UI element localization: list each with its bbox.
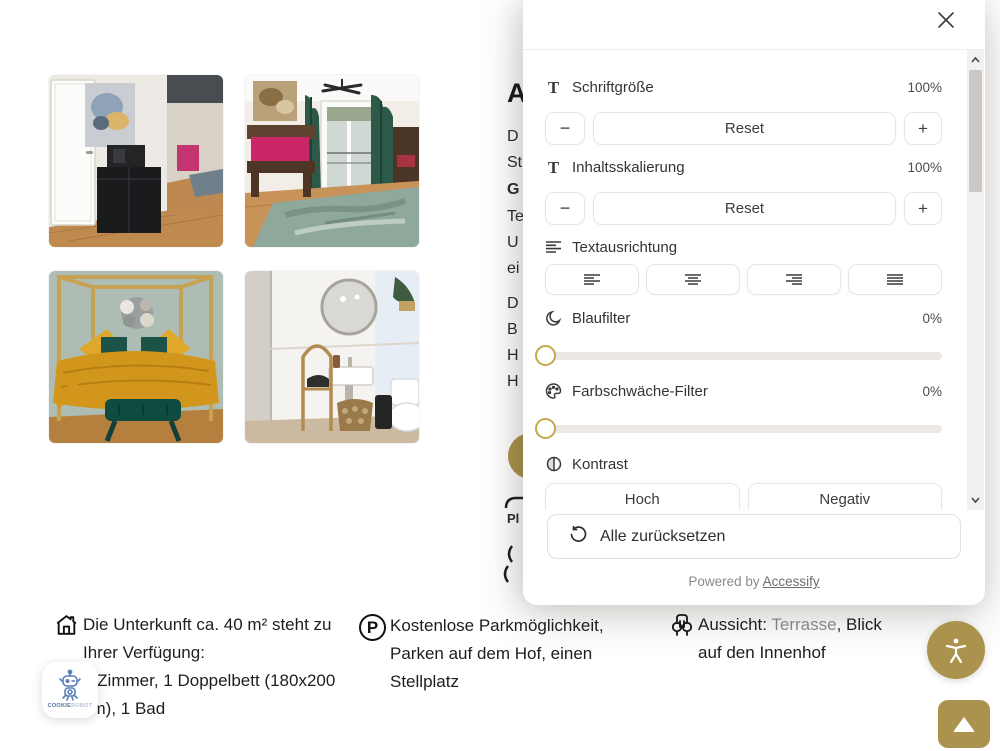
panel-header — [523, 0, 985, 50]
align-left-button[interactable] — [545, 264, 639, 295]
color-weakness-label: Farbschwäche-Filter — [572, 383, 708, 400]
contrast-icon — [545, 456, 562, 473]
powered-by: Powered by Accessify — [547, 574, 961, 589]
house-icon — [54, 613, 79, 647]
blue-filter-value: 0% — [922, 311, 942, 326]
text-fragment: St — [507, 154, 522, 172]
reset-all-label: Alle zurücksetzen — [600, 528, 725, 546]
text-fragment: U — [507, 234, 519, 252]
font-size-increase-button[interactable]: + — [904, 112, 942, 145]
text-fragment: D — [507, 295, 519, 313]
blue-filter-slider-track[interactable] — [545, 352, 942, 360]
text-fragment: ei — [507, 260, 519, 278]
blue-filter-slider — [545, 343, 942, 369]
text-alignment-controls — [545, 264, 942, 295]
contrast-label-row: Kontrast — [545, 454, 942, 474]
contrast-controls: Hoch Negativ — [545, 483, 942, 510]
align-right-button[interactable] — [747, 264, 841, 295]
align-center-button[interactable] — [646, 264, 740, 295]
align-center-icon — [685, 274, 701, 285]
panel-scrollbar[interactable] — [967, 50, 984, 510]
feature-line: auf den Innenhof — [698, 639, 882, 667]
content-scaling-label-row: T Inhaltsskalierung 100% — [545, 157, 942, 177]
align-left-icon — [584, 274, 600, 285]
color-weakness-value: 0% — [922, 384, 942, 399]
text-alignment-label: Textausrichtung — [572, 239, 677, 256]
font-size-icon: T — [545, 79, 562, 96]
color-weakness-slider-track[interactable] — [545, 425, 942, 433]
feature-view: Aussicht: Terrasse, Blick auf den Innenh… — [698, 611, 882, 667]
view-value-muted: Terrasse — [771, 615, 836, 634]
content-scaling-increase-button[interactable]: + — [904, 192, 942, 225]
text-alignment-icon — [545, 239, 562, 256]
blue-filter-slider-handle[interactable] — [535, 345, 556, 366]
panel-scroll-area: T Schriftgröße 100% − Reset + T Inhaltss… — [523, 50, 985, 510]
align-justify-button[interactable] — [848, 264, 942, 295]
cookie-settings-widget[interactable]: COOKIEROBOT — [42, 662, 98, 718]
accessibility-widget-button[interactable] — [927, 621, 985, 679]
align-right-icon — [786, 274, 802, 285]
blue-filter-label-row: Blaufilter 0% — [545, 308, 942, 328]
cookie-brand-secondary: ROBOT — [71, 703, 92, 709]
font-size-decrease-button[interactable]: − — [545, 112, 585, 145]
view-label: Aussicht: — [698, 615, 771, 634]
cookie-brand-primary: COOKIE — [48, 703, 72, 709]
reset-all-button[interactable]: Alle zurücksetzen — [547, 514, 961, 559]
scroll-top-icon — [953, 717, 975, 732]
scrollbar-down-arrow[interactable] — [967, 492, 984, 508]
cookie-robot-icon — [55, 668, 85, 702]
font-size-label: Schriftgröße — [572, 79, 654, 96]
binoculars-icon — [670, 613, 694, 648]
font-size-controls: − Reset + — [545, 112, 942, 145]
scroll-to-top-button[interactable] — [938, 700, 990, 748]
accessibility-panel: T Schriftgröße 100% − Reset + T Inhaltss… — [523, 0, 985, 605]
content-scaling-value: 100% — [907, 160, 942, 175]
content-scaling-controls: − Reset + — [545, 192, 942, 225]
text-alignment-label-row: Textausrichtung — [545, 237, 942, 257]
feature-parking: P Kostenlose Parkmöglichkeit, Parken auf… — [390, 612, 604, 696]
content-scaling-icon: T — [545, 159, 562, 176]
font-size-label-row: T Schriftgröße 100% — [545, 77, 942, 97]
view-value: , Blick — [837, 615, 882, 634]
feature-line: cm), 1 Bad — [83, 695, 335, 723]
feature-line: Die Unterkunft ca. 40 m² steht zu — [83, 611, 335, 639]
parking-icon-letter: P — [367, 619, 378, 636]
content-scaling-label: Inhaltsskalierung — [572, 159, 685, 176]
feature-line: Kostenlose Parkmöglichkeit, — [390, 612, 604, 640]
font-size-value: 100% — [907, 80, 942, 95]
blue-filter-label: Blaufilter — [572, 310, 630, 327]
parking-icon: P — [359, 614, 386, 641]
panel-footer: Alle zurücksetzen Powered by Accessify — [523, 510, 985, 589]
text-fragment: G — [507, 181, 519, 199]
text-fragment: H — [507, 347, 519, 365]
color-weakness-label-row: Farbschwäche-Filter 0% — [545, 381, 942, 401]
feature-line: 2 Zimmer, 1 Doppelbett (180x200 — [83, 667, 335, 695]
feature-line: Stellplatz — [390, 668, 604, 696]
feature-line: Parken auf dem Hof, einen — [390, 640, 604, 668]
contrast-high-button[interactable]: Hoch — [545, 483, 740, 510]
accessify-link[interactable]: Accessify — [763, 574, 820, 589]
moon-icon — [545, 310, 562, 327]
font-size-reset-button[interactable]: Reset — [593, 112, 896, 145]
powered-by-text: Powered by — [688, 574, 759, 589]
close-icon[interactable] — [935, 9, 957, 31]
text-fragment: D — [507, 128, 519, 146]
color-weakness-slider — [545, 416, 942, 442]
align-justify-icon — [887, 274, 903, 285]
contrast-negative-button[interactable]: Negativ — [748, 483, 943, 510]
reset-icon — [570, 526, 587, 548]
accessibility-person-icon — [943, 636, 969, 664]
page: A D St G Te U ei D B H H Pl Die Unterkun… — [0, 0, 1000, 751]
contrast-label: Kontrast — [572, 456, 628, 473]
color-weakness-slider-handle[interactable] — [535, 418, 556, 439]
partial-icon-fragments — [498, 494, 524, 589]
palette-icon — [545, 383, 562, 400]
feature-line: Ihrer Verfügung: — [83, 639, 335, 667]
feature-accommodation: Die Unterkunft ca. 40 m² steht zu Ihrer … — [83, 611, 335, 723]
cookie-brand-label: COOKIEROBOT — [48, 703, 93, 709]
text-fragment: B — [507, 321, 518, 339]
text-fragment: H — [507, 373, 519, 391]
content-scaling-decrease-button[interactable]: − — [545, 192, 585, 225]
scrollbar-up-arrow[interactable] — [967, 52, 984, 68]
text-fragment: Te — [507, 208, 524, 226]
scrollbar-thumb[interactable] — [969, 70, 982, 192]
content-scaling-reset-button[interactable]: Reset — [593, 192, 896, 225]
